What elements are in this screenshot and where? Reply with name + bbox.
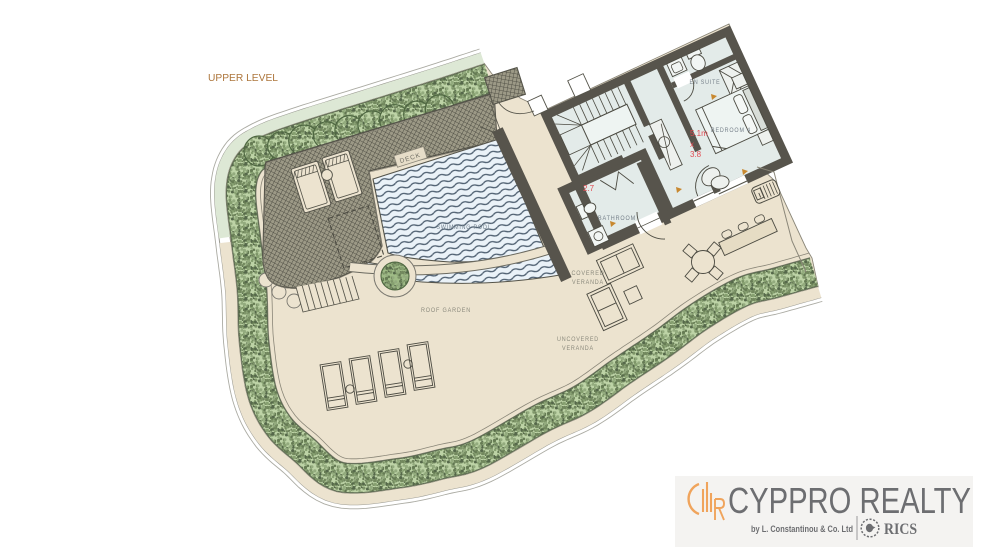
svg-text:COVERED: COVERED — [572, 270, 605, 277]
svg-text:EN SUITE: EN SUITE — [690, 79, 721, 86]
svg-text:2.7: 2.7 — [583, 184, 595, 193]
svg-text:SWIMMING POOL: SWIMMING POOL — [437, 224, 492, 231]
svg-text:VERANDA: VERANDA — [562, 345, 594, 352]
svg-text:BEDROOM 4: BEDROOM 4 — [711, 127, 751, 134]
svg-text:VERANDA: VERANDA — [572, 279, 604, 286]
svg-text:ROOF GARDEN: ROOF GARDEN — [421, 307, 471, 314]
svg-text:5.1m: 5.1m — [690, 129, 708, 138]
svg-text:x: x — [690, 140, 694, 149]
svg-text:UPPER LEVEL: UPPER LEVEL — [208, 72, 278, 84]
svg-text:RICS: RICS — [884, 521, 917, 538]
svg-text:UNCOVERED: UNCOVERED — [557, 336, 599, 343]
svg-text:BATHROOM: BATHROOM — [598, 215, 636, 222]
svg-text:CYPPRO REALTY: CYPPRO REALTY — [728, 480, 971, 521]
svg-text:by L. Constantinou & Co. Ltd: by L. Constantinou & Co. Ltd — [751, 524, 853, 534]
svg-text:3.8: 3.8 — [690, 150, 702, 159]
